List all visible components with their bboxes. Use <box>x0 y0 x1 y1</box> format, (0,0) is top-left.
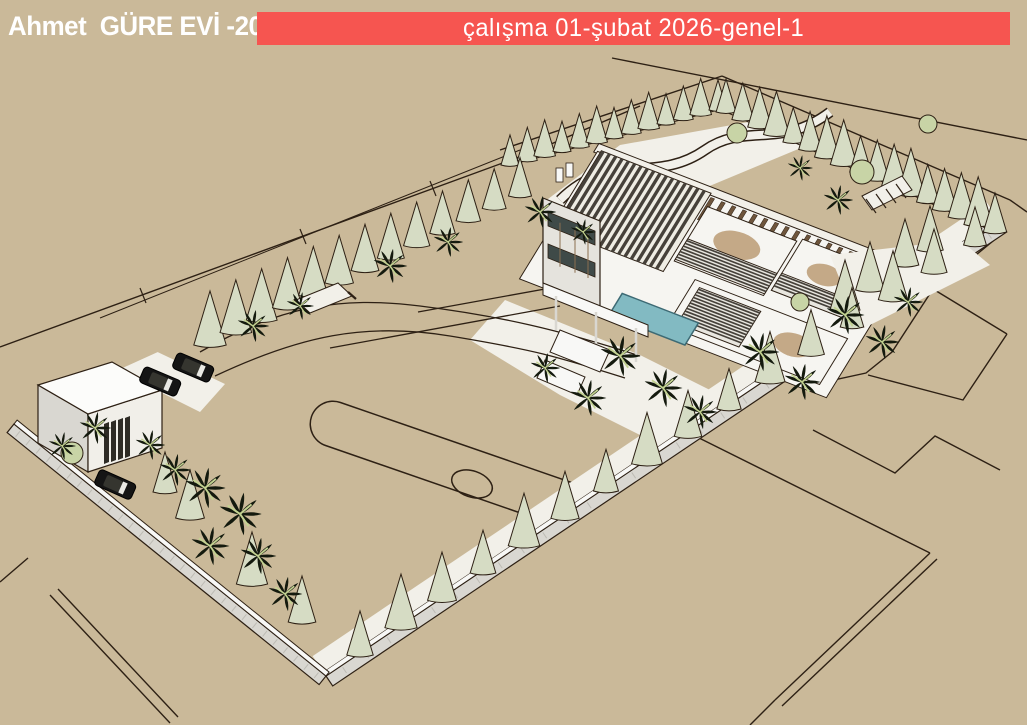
bush <box>791 293 809 311</box>
parcel-line <box>775 553 930 700</box>
cypress-tree <box>153 452 177 494</box>
cypress-tree <box>657 94 675 125</box>
door-slat <box>125 416 130 458</box>
parcel-line <box>58 589 178 717</box>
cypress-tree <box>517 127 537 161</box>
cypress-hedge-driveway <box>194 158 532 348</box>
bush <box>727 123 747 143</box>
door-slat <box>111 420 116 462</box>
parcel-line <box>1010 200 1027 212</box>
cypress-tree <box>220 280 252 335</box>
parcel-line <box>750 700 775 725</box>
palm-tree <box>193 528 228 563</box>
cypress-tree <box>482 169 506 210</box>
cypress-tree <box>246 269 277 323</box>
drawing-sheet: Ahmet GÜRE EVİ -2026 çalışma 01-şubat 20… <box>0 0 1027 725</box>
palm-tree <box>789 156 812 180</box>
cypress-tree <box>569 114 589 148</box>
palm-tree <box>221 494 260 533</box>
parcel-line <box>0 558 28 582</box>
site-render <box>0 0 1027 725</box>
cypress-tree <box>377 213 404 260</box>
cypress-tree <box>194 291 226 347</box>
parcel-line <box>612 58 1027 140</box>
palm-tree <box>825 186 852 214</box>
cypress-tree <box>404 202 430 248</box>
cypress-tree <box>534 120 556 158</box>
parcel-line <box>868 334 1007 400</box>
parcel-line <box>50 595 170 723</box>
parcel-line <box>430 181 436 196</box>
palm-tree <box>867 326 898 358</box>
chimney <box>566 163 573 177</box>
chimney <box>556 168 563 182</box>
cypress-tree <box>501 135 519 166</box>
parcel-line <box>813 430 1000 473</box>
cypress-tree <box>430 191 455 235</box>
door-slat <box>118 418 123 460</box>
cypress-tree <box>690 79 712 117</box>
bush <box>919 115 937 133</box>
cypress-tree <box>351 224 379 272</box>
bush <box>850 160 874 184</box>
cypress-tree <box>621 100 641 134</box>
parcel-line <box>683 430 930 553</box>
cypress-tree <box>456 180 481 223</box>
cypress-tree <box>605 108 623 139</box>
cypress-tree <box>325 235 354 285</box>
parcel-line <box>782 559 937 706</box>
cypress-tree <box>586 106 608 144</box>
perimeter-wall-top <box>14 420 329 676</box>
